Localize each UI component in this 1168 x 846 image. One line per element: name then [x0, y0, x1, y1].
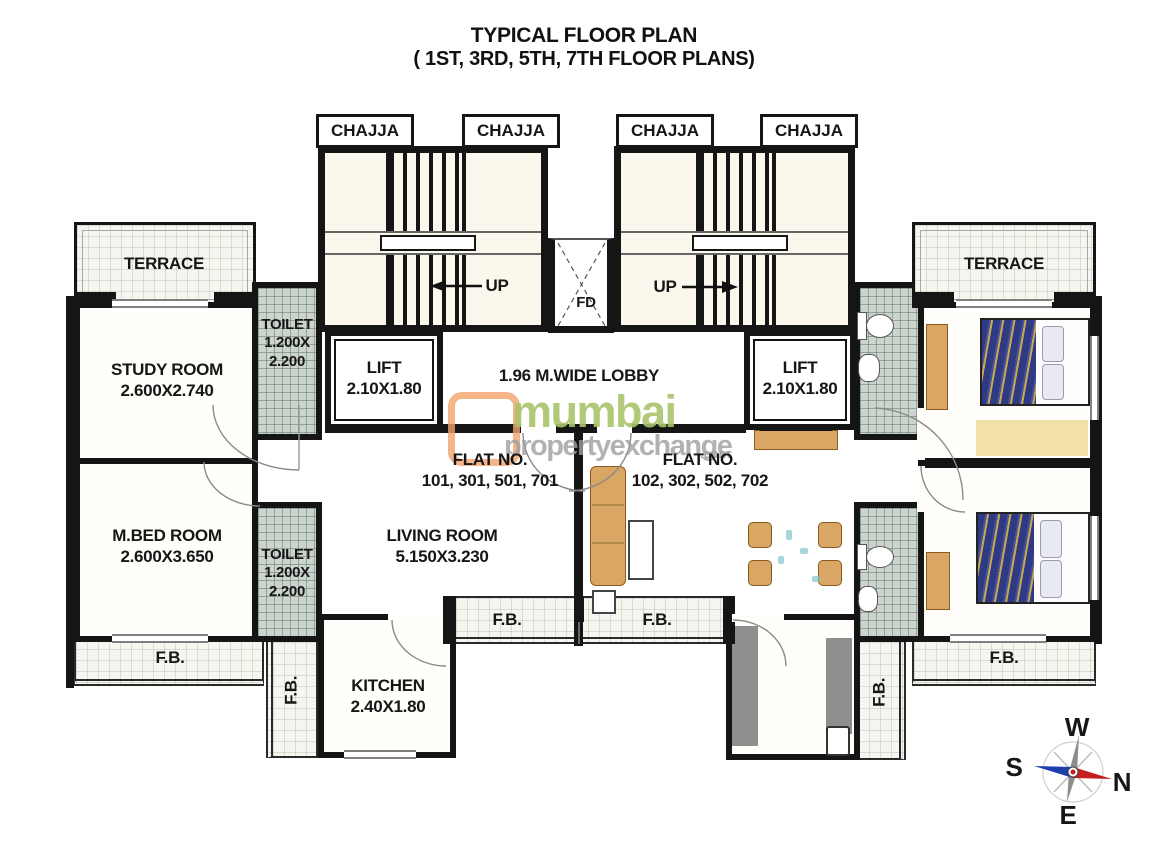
pillow [1042, 364, 1064, 400]
table-decor [800, 548, 808, 554]
toilet-upper-left-label: TOILET 1.200X 2.200 [246, 316, 328, 371]
fb-right-vertical-label: F.B. [870, 670, 891, 714]
coffee-table [628, 520, 654, 580]
chajja-label: CHAJJA [631, 121, 699, 141]
window [112, 299, 208, 308]
window [112, 634, 208, 643]
terrace-left-label: TERRACE [99, 254, 229, 275]
flat-right-heading: FLAT NO. [588, 450, 812, 471]
fire-duct-shaft [548, 238, 614, 333]
kitchen-right-door-opening [732, 614, 784, 622]
bed-upper-blanket [982, 320, 1036, 404]
master-bedroom-size: 2.600X3.650 [92, 547, 242, 568]
master-bedroom-name: M.BED ROOM [92, 526, 242, 547]
window [1090, 516, 1099, 600]
dining-chair [818, 522, 842, 548]
lift-left-label: LIFT [331, 358, 437, 379]
living-room-size: 5.150X3.230 [352, 547, 532, 568]
chajja-box-3: CHAJJA [616, 114, 714, 148]
compass-north-label: N [1108, 767, 1136, 799]
stair-handrail-right [692, 235, 788, 251]
study-room-size: 2.600X2.740 [92, 381, 242, 402]
compass-south-label: S [1000, 752, 1028, 784]
toilet-name: TOILET [246, 316, 328, 334]
washbasin [858, 354, 880, 382]
floor-plan-canvas: TYPICAL FLOOR PLAN ( 1ST, 3RD, 5TH, 7TH … [0, 0, 1168, 846]
toilet-size-b: 2.200 [246, 353, 328, 371]
window [1090, 336, 1099, 420]
staircase-right [614, 146, 855, 332]
fb-mid-right-label: F.B. [618, 610, 696, 631]
flat-right-label: FLAT NO. 102, 302, 502, 702 [588, 450, 812, 491]
kitchen-label: KITCHEN 2.40X1.80 [330, 676, 446, 717]
title-line-2: ( 1ST, 3RD, 5TH, 7TH FLOOR PLANS) [334, 48, 834, 71]
lift-right: LIFT 2.10X1.80 [744, 330, 856, 430]
study-room-name: STUDY ROOM [92, 360, 242, 381]
toilet-size-a: 1.200X [246, 564, 328, 582]
sofa-cushion-line [592, 542, 624, 544]
fb-post [443, 596, 456, 644]
toilet-size-a: 1.200X [246, 334, 328, 352]
pillow [1042, 326, 1064, 362]
fb-center-post [574, 596, 584, 622]
dresser [926, 552, 950, 610]
title-line-1: TYPICAL FLOOR PLAN [334, 24, 834, 48]
table-decor [786, 530, 792, 540]
sofa-cushion-line [592, 504, 624, 506]
compass-point-east [1067, 771, 1077, 802]
window [344, 750, 416, 759]
chajja-box-4: CHAJJA [760, 114, 858, 148]
flat-left-label: FLAT NO. 101, 301, 501, 701 [398, 450, 582, 491]
terrace-right-label: TERRACE [939, 254, 1069, 275]
rug [976, 420, 1088, 456]
kitchen-sink [826, 726, 850, 756]
compass-east-label: E [1054, 800, 1082, 832]
terrace-post [912, 292, 954, 306]
study-room-label: STUDY ROOM 2.600X2.740 [92, 360, 242, 401]
flat-right-numbers: 102, 302, 502, 702 [588, 471, 812, 492]
fire-duct-label: FD [565, 294, 607, 312]
wc-bowl [866, 314, 894, 338]
tv-unit [754, 430, 838, 450]
bedroom-upper-door-opening [917, 408, 925, 460]
terrace-post [214, 292, 256, 306]
window [956, 299, 1052, 308]
pillow [1040, 520, 1062, 558]
compass-rose [1034, 735, 1112, 802]
up-label-left: UP [478, 276, 516, 297]
table-decor [812, 576, 820, 582]
fb-center-mullion [578, 622, 580, 644]
kitchen-counter [826, 638, 852, 734]
chajja-box-2: CHAJJA [462, 114, 560, 148]
living-room-name: LIVING ROOM [352, 526, 532, 547]
flat-left-heading: FLAT NO. [398, 450, 582, 471]
toilet-lower-right [854, 502, 926, 642]
compass-west-label: W [1063, 712, 1091, 744]
dining-chair [748, 560, 772, 586]
staircase-left [318, 146, 548, 332]
chajja-label: CHAJJA [331, 121, 399, 141]
outer-wall-left [66, 296, 74, 688]
dining-chair [818, 560, 842, 586]
washbasin [858, 586, 878, 612]
fb-right-label: F.B. [962, 648, 1046, 669]
dining-chair [748, 522, 772, 548]
chajja-label: CHAJJA [775, 121, 843, 141]
window [950, 634, 1046, 643]
lift-right-label: LIFT [750, 358, 850, 379]
chajja-label: CHAJJA [477, 121, 545, 141]
kitchen-left-door-opening [388, 614, 448, 622]
terrace-post [1054, 292, 1096, 306]
compass-needle-south [1034, 766, 1073, 778]
kitchen-name: KITCHEN [330, 676, 446, 697]
side-table [592, 590, 616, 614]
fb-mid-left-label: F.B. [468, 610, 546, 631]
stair-handrail-left [380, 235, 476, 251]
kitchen-counter [732, 626, 758, 746]
pillow [1040, 560, 1062, 598]
chajja-box-1: CHAJJA [316, 114, 414, 148]
flat-left-numbers: 101, 301, 501, 701 [398, 471, 582, 492]
living-room-label: LIVING ROOM 5.150X3.230 [352, 526, 532, 567]
toilet-name: TOILET [246, 546, 328, 564]
toilet-size-b: 2.200 [246, 583, 328, 601]
bedroom-lower-door-opening [917, 466, 925, 512]
tv-unit-edge [760, 427, 832, 431]
compass-needle-north [1073, 767, 1112, 779]
terrace-post [74, 292, 116, 306]
bed-lower-blanket [978, 514, 1034, 602]
kitchen-size: 2.40X1.80 [330, 697, 446, 718]
lobby-label: 1.96 M.WIDE LOBBY [468, 366, 690, 387]
lift-right-size: 2.10X1.80 [750, 379, 850, 400]
fb-left-label: F.B. [130, 648, 210, 669]
page-title: TYPICAL FLOOR PLAN ( 1ST, 3RD, 5TH, 7TH … [334, 24, 834, 71]
wardrobe [926, 324, 948, 410]
master-bedroom-label: M.BED ROOM 2.600X3.650 [92, 526, 242, 567]
up-label-right: UP [646, 277, 684, 298]
toilet-lower-left-label: TOILET 1.200X 2.200 [246, 546, 328, 601]
lift-left-size: 2.10X1.80 [331, 379, 437, 400]
lift-left: LIFT 2.10X1.80 [325, 330, 443, 430]
wc-bowl [866, 546, 894, 568]
fb-left-vertical-label: F.B. [282, 668, 303, 712]
table-decor [778, 556, 784, 564]
